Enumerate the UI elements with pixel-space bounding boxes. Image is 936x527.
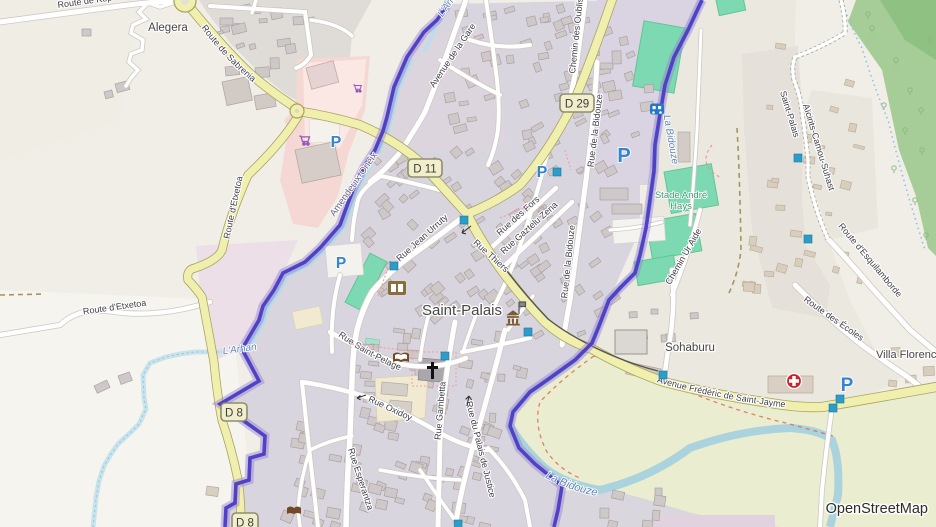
svg-text:Hays: Hays: [670, 201, 692, 212]
svg-text:Villa Florence: Villa Florence: [876, 349, 936, 361]
svg-text:D 29: D 29: [565, 99, 589, 111]
svg-text:OpenStreetMap: OpenStreetMap: [826, 501, 928, 517]
svg-text:D 11: D 11: [413, 164, 436, 176]
svg-text:Stade André: Stade André: [655, 190, 707, 201]
svg-text:Alegera: Alegera: [148, 22, 188, 34]
svg-text:Sohaburu: Sohaburu: [665, 342, 715, 354]
svg-text:P: P: [617, 145, 630, 167]
svg-text:P: P: [331, 134, 342, 151]
svg-text:Saint-Palais: Saint-Palais: [422, 302, 502, 319]
svg-text:D 8: D 8: [225, 408, 243, 420]
svg-text:P: P: [841, 375, 854, 396]
svg-text:P: P: [336, 255, 346, 272]
svg-text:D 8: D 8: [236, 518, 254, 527]
svg-text:P: P: [537, 164, 548, 181]
